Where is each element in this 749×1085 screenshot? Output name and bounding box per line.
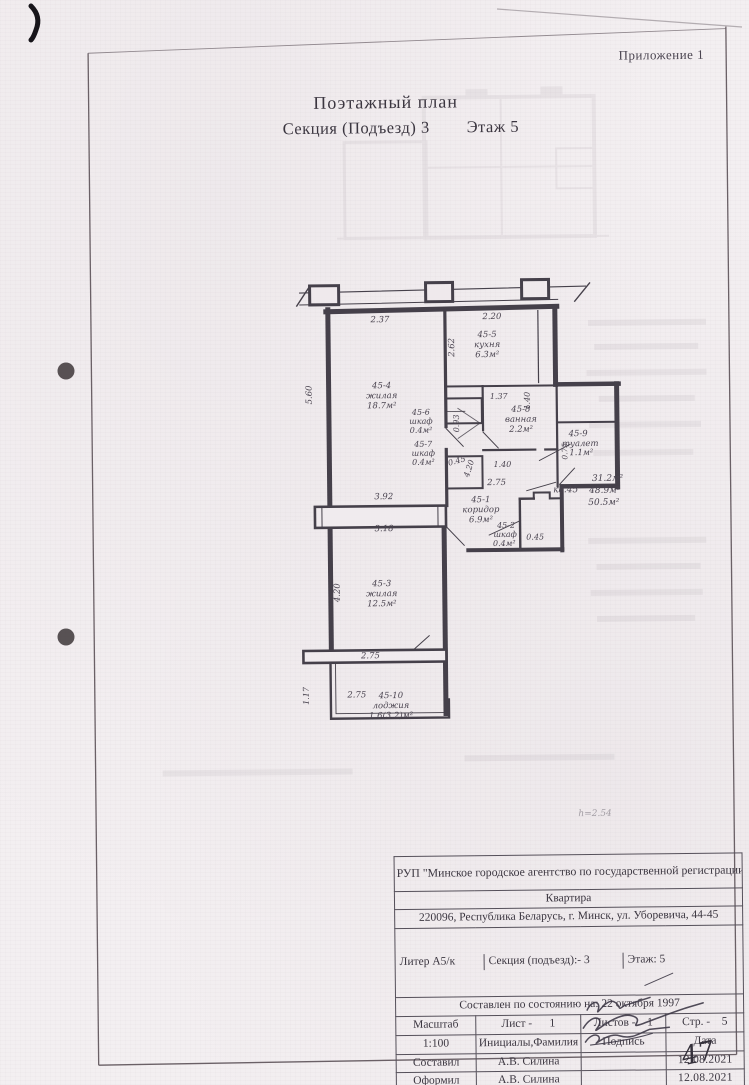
page-header: Стр. - 5 xyxy=(666,1013,744,1033)
plan-label: 45-10 xyxy=(378,691,404,701)
plan-label: 3.92 xyxy=(374,492,393,502)
pilaster xyxy=(521,279,548,298)
plan-label: h=2.54 xyxy=(578,809,612,819)
plan-label: 2.37 xyxy=(369,315,390,325)
role-cell: Составил xyxy=(396,1054,476,1073)
plan-label: 12.5м² xyxy=(367,599,397,609)
plan-label: 50.5м² xyxy=(588,498,620,508)
plan-label: 18.7м² xyxy=(367,401,397,411)
sheets-header: Листов - 1 xyxy=(581,1014,666,1034)
plan-label: 45-3 xyxy=(371,579,391,589)
plan-label: туалет xyxy=(562,439,599,449)
plan-label: 45-4 xyxy=(371,381,391,391)
signature-cell xyxy=(581,1070,666,1085)
closet-45-6 xyxy=(446,398,482,423)
name-cell: А.В. Силина xyxy=(476,1053,581,1072)
document-sheet: 2.372.202.625.6045-4жилая18.7м²45-5кухня… xyxy=(0,0,749,1085)
scale-header: Масштаб xyxy=(396,1016,476,1036)
pilaster xyxy=(310,286,339,305)
plan-label: 1.6(3.2)м² xyxy=(369,710,414,721)
org-name: РУП "Минское городское агентство по госу… xyxy=(394,853,742,892)
plan-label: 2.75 xyxy=(360,651,380,661)
plan-label: шкаф xyxy=(409,417,432,426)
closet-45-7 xyxy=(446,456,482,488)
plan-label: 31.2м² xyxy=(592,474,624,484)
plan-label: жилая xyxy=(366,391,398,401)
plan-label: 1.40 xyxy=(523,392,532,410)
plan-label: 45-1 xyxy=(470,495,490,505)
plan-label: 45-2 xyxy=(496,521,515,530)
plan-label: 45-6 xyxy=(411,408,430,417)
plan-label: 0.93 xyxy=(452,414,461,432)
scanned-page: 2.372.202.625.6045-4жилая18.7м²45-5кухня… xyxy=(0,0,749,1085)
plan-label: кв.45 xyxy=(553,485,578,495)
signature-cell xyxy=(581,1052,666,1071)
plan-label: 5.60 xyxy=(305,385,315,405)
plan-subtitle: Секция (Подъезд) 3 Этаж 5 xyxy=(221,116,581,140)
role-cell: Оформил xyxy=(396,1072,476,1085)
plan-label: 0.4м² xyxy=(410,426,433,435)
bleed-through-ghost xyxy=(155,85,710,777)
plan-label: 48.9м² xyxy=(588,486,621,496)
plan-label: 45-7 xyxy=(413,440,433,449)
plan-labels: 2.372.202.625.6045-4жилая18.7м²45-5кухня… xyxy=(298,311,627,822)
plan-label: 2.75 xyxy=(346,690,366,700)
plan-label: ванная xyxy=(505,415,537,425)
section-label: Секция (подъезд):- 3 xyxy=(485,953,624,970)
plan-label: 1.17 xyxy=(302,686,311,705)
liter-section-floor-row: Литер А5/к Секция (подъезд):- 3 Этаж: 5 xyxy=(396,952,743,971)
wall-band xyxy=(315,506,446,528)
plan-label: 0.4м² xyxy=(493,539,516,548)
signature-header: Подпись xyxy=(581,1033,666,1053)
scale-value: 1:100 xyxy=(396,1035,476,1055)
plan-label: 1.37 xyxy=(490,392,509,401)
plan-label: 4.20 xyxy=(462,459,476,480)
plan-label: коридор xyxy=(462,505,500,515)
plan-label: 2.75 xyxy=(486,478,506,488)
sheet-header: Лист - 1 xyxy=(476,1015,581,1035)
name-header: Инициалы,Фамилия xyxy=(476,1034,581,1054)
plan-title: Поэтажный план xyxy=(246,91,526,115)
name-cell: А.В. Силина xyxy=(476,1071,581,1085)
plan-label: лоджия xyxy=(373,701,410,711)
liter-label: Литер А5/к xyxy=(396,955,485,971)
plan-label: 2.2м² xyxy=(508,425,534,435)
plan-label: шкаф xyxy=(412,449,435,458)
plan-label: 2.20 xyxy=(481,312,502,322)
plan-label: 4.20 xyxy=(333,583,343,604)
annex-label: Приложение 1 xyxy=(619,47,705,64)
plan-label: 0.45 xyxy=(447,454,467,467)
plan-label: 0.45 xyxy=(526,532,544,541)
plan-label: жилая xyxy=(366,589,398,599)
plan-label: 45-8 xyxy=(510,405,531,415)
plan-walls xyxy=(297,279,623,719)
wall-band xyxy=(303,650,446,663)
table-row: Оформил А.В. Силина 12.08.2021 xyxy=(396,1069,744,1085)
plan-label: кухня xyxy=(474,340,501,350)
pilaster xyxy=(426,282,453,301)
floor-label: Этаж: 5 xyxy=(624,952,743,968)
plan-label: 6.9м² xyxy=(469,515,494,525)
plan-label: 0.75 xyxy=(560,443,569,460)
plan-label: 1.1м² xyxy=(569,448,594,458)
plan-label: 45-5 xyxy=(476,330,496,340)
plan-label: шкаф xyxy=(493,530,516,539)
plan-label: 1.40 xyxy=(493,460,511,469)
plan-label: 45-9 xyxy=(568,429,589,439)
plan-label: 0.4м² xyxy=(412,458,435,467)
plan-label: 6.3м² xyxy=(475,350,500,360)
date-cell: 12.08.2021 xyxy=(666,1069,744,1085)
plan-label: 2.62 xyxy=(447,338,457,358)
plan-label: 3.18 xyxy=(375,524,395,534)
